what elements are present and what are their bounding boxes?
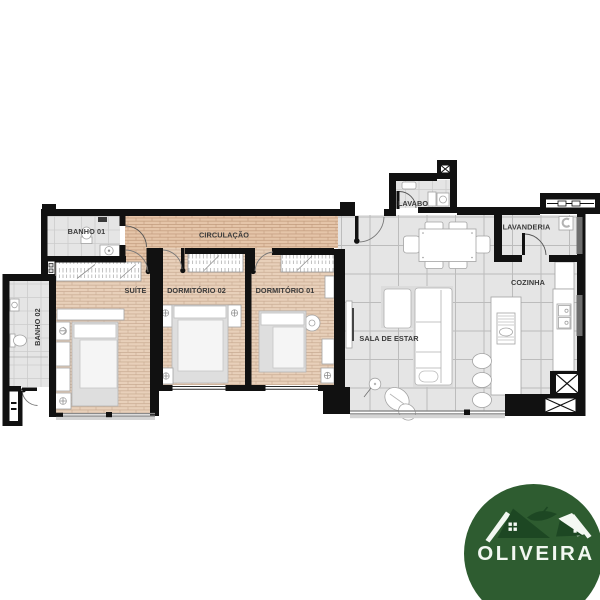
svg-text:DORMITÓRIO 01: DORMITÓRIO 01 [256,286,315,295]
svg-text:LAVABO: LAVABO [398,199,429,208]
svg-text:DORMITÓRIO 02: DORMITÓRIO 02 [167,286,226,295]
svg-text:COZINHA: COZINHA [511,278,546,287]
svg-text:CIRCULAÇÃO: CIRCULAÇÃO [199,231,249,240]
svg-text:BANHO 02: BANHO 02 [33,308,42,346]
svg-text:LAVANDERIA: LAVANDERIA [503,223,551,232]
svg-text:OLIVEIRA: OLIVEIRA [477,542,595,565]
svg-text:BANHO 01: BANHO 01 [68,227,106,236]
svg-text:SALA DE ESTAR: SALA DE ESTAR [359,334,419,343]
svg-text:SUÍTE: SUÍTE [125,286,147,295]
